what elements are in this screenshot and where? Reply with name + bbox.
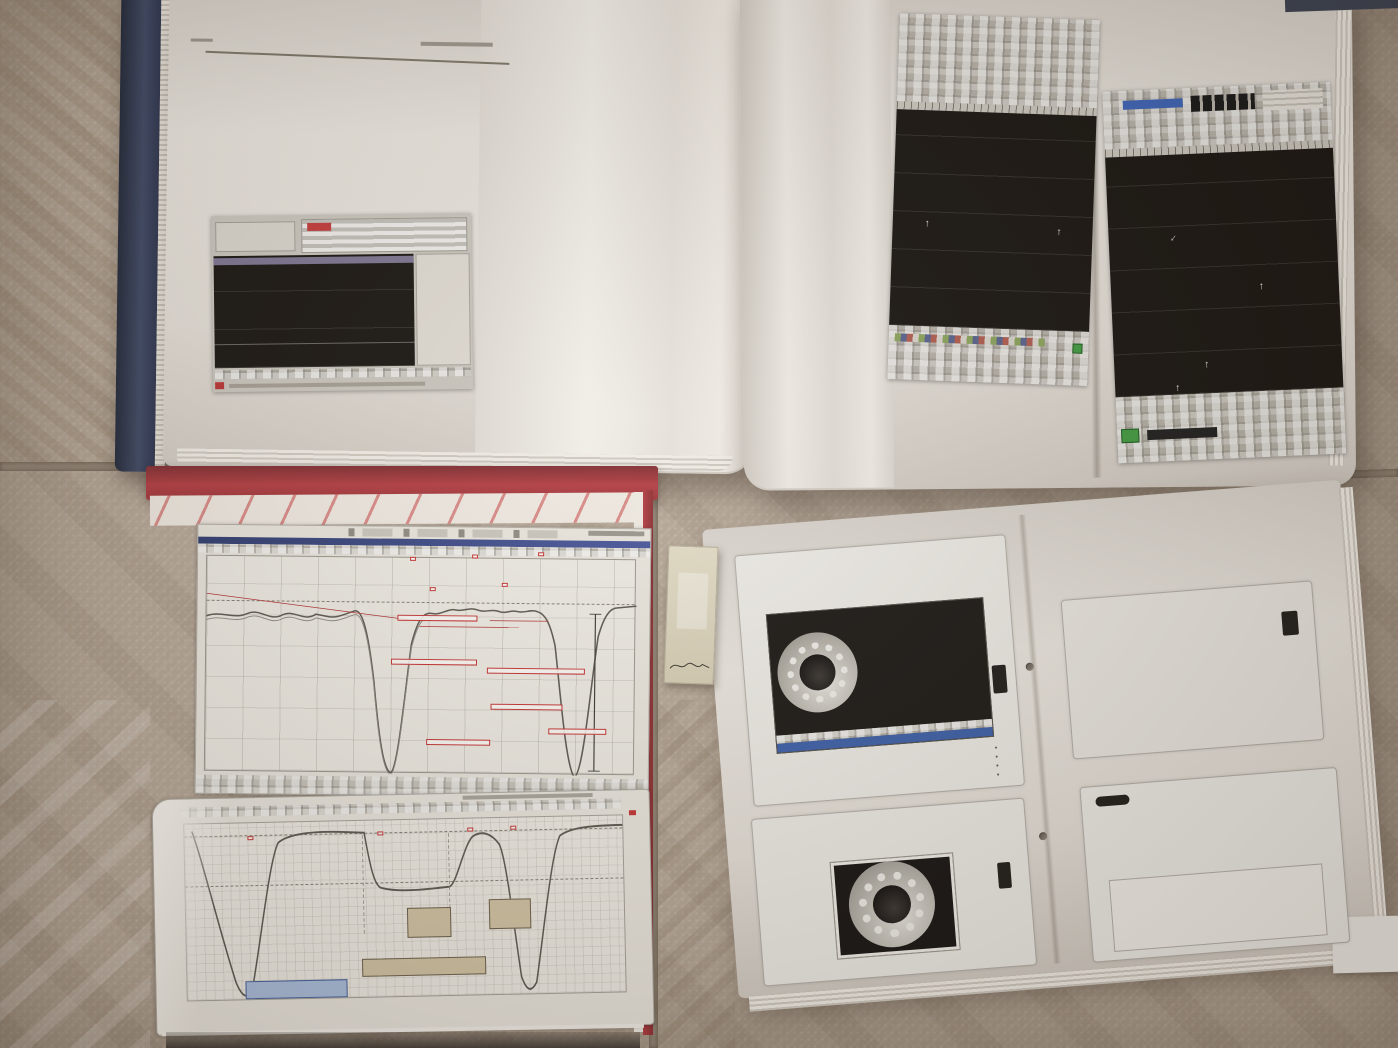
- caption-line-2: [1301, 136, 1310, 144]
- right-axis-labels: [631, 820, 649, 1000]
- scope-screenshot-left: ↑ ↑: [887, 13, 1100, 386]
- book-spine: [115, 0, 162, 472]
- bearing-photo: [831, 853, 960, 958]
- compression-chart-2: [152, 789, 655, 1035]
- right-axis-labels: [636, 563, 651, 775]
- window-title-text-bar: [588, 531, 644, 537]
- book-bottom-shadow: [166, 1032, 640, 1048]
- arrow-up: ↑: [1259, 281, 1264, 292]
- annotation-5: [426, 739, 490, 746]
- annotation-1: [397, 615, 477, 622]
- bookmark-card: [664, 545, 719, 685]
- pico-logo-pill: [1095, 794, 1130, 807]
- spectrum-plot: [1109, 863, 1328, 952]
- top-toolbar: [181, 798, 621, 817]
- tan-annotation-wide: [362, 956, 486, 977]
- bookmark-brand: [669, 550, 717, 552]
- pico-logo: [997, 862, 1012, 889]
- annotation-3: [487, 668, 585, 675]
- software-screenshot: [766, 597, 994, 754]
- tile-ornament-bottom-left: [0, 700, 150, 1048]
- bdc-tag-2: [472, 555, 478, 559]
- slide-vibration-enveloping-2: [751, 798, 1037, 987]
- checkbox-row: [348, 528, 568, 538]
- binder-bottom-right: [702, 478, 1398, 1048]
- title-red: [1072, 717, 1321, 737]
- bookmark-sketch: [677, 573, 709, 630]
- toolbar-strip: [215, 367, 471, 379]
- vibration-waveform: [863, 597, 990, 726]
- ignition-traces: [214, 254, 415, 368]
- slide-content: [1062, 581, 1324, 758]
- arrow-up: ↑: [1204, 359, 1209, 370]
- pico-logo: [992, 665, 1008, 694]
- annotation-6: [548, 728, 606, 735]
- tile-ornament-top-left: [0, 0, 120, 465]
- subtitle: [1072, 717, 1321, 737]
- title-line-2: [1072, 717, 1321, 737]
- green-button: [1121, 428, 1140, 443]
- evc-tag: [502, 583, 508, 587]
- table-red-cell: [307, 223, 331, 231]
- page-curl-highlight: [153, 799, 238, 1037]
- pressure-curves: [205, 556, 637, 776]
- book-top-left: [115, 0, 767, 491]
- annotation-2: [391, 659, 477, 666]
- paragraph-block-bottom: [215, 401, 526, 461]
- slide-content: [752, 799, 1036, 986]
- tag-366: [377, 831, 383, 835]
- tag-126: [467, 828, 473, 832]
- title-line-1: [1072, 717, 1321, 737]
- arrow-up: ↑: [1056, 227, 1061, 238]
- waveform-plot: [214, 254, 415, 368]
- green-indicator: [1072, 343, 1082, 353]
- bdc-tag-1: [410, 557, 416, 561]
- bullet-line-1: [995, 952, 996, 959]
- left-page-curl: [740, 0, 894, 489]
- book-top-right: ↑ ↑ ↓ ↑ ↑ ↑: [740, 0, 1384, 506]
- tag-230: [247, 836, 253, 840]
- vacuum-noise-trace: [889, 109, 1096, 332]
- oscilloscope-screenshot: [211, 213, 473, 392]
- table-small-panel: [215, 221, 295, 252]
- handwriting-squiggle: [668, 656, 713, 676]
- chrome-toolbar: [897, 13, 1100, 108]
- page-number-mark: [191, 38, 213, 41]
- bookmark-text-lines: [672, 638, 711, 655]
- book-bottom-left: [138, 462, 666, 1048]
- evo-tag: [430, 587, 436, 591]
- spectrum-comb: [1110, 865, 1324, 941]
- blue-info-box: [245, 979, 347, 999]
- arrow-up: ↑: [1175, 383, 1180, 394]
- tan-annotation-2: [489, 898, 532, 929]
- slide-content: [735, 535, 1024, 805]
- signal-list-panel: [416, 253, 471, 366]
- caption-line: [229, 382, 425, 388]
- slide-bearing-fault-spectrum: [1079, 767, 1350, 963]
- white-panel: [1262, 88, 1323, 111]
- tag-1: [510, 826, 516, 830]
- caption-line-2: [879, 108, 886, 116]
- slide-vibration-enveloping-1: [734, 534, 1025, 807]
- photo-of-books-on-tile-floor: ↑ ↑ ↓ ↑ ↑ ↑: [0, 0, 1398, 1048]
- pico-logo: [1281, 611, 1299, 636]
- bearing-image: [767, 608, 870, 734]
- blank-right-pages: [475, 0, 760, 472]
- bullet-list: [751, 745, 989, 797]
- tan-annotation-1: [407, 907, 452, 938]
- red-dash-page: [150, 492, 650, 525]
- slide-content: [1080, 768, 1349, 962]
- bdc-tag-3: [538, 552, 544, 556]
- caption-red-box: [215, 382, 224, 389]
- paragraph-block-top: [214, 81, 516, 205]
- black-buttons: [1191, 93, 1256, 112]
- compression-chart-1: [195, 524, 652, 799]
- slide-enveloping-title: [1061, 580, 1325, 759]
- annotation-4: [490, 704, 562, 711]
- red-axis-mark: [629, 810, 636, 815]
- arrow-up: ↑: [925, 218, 930, 229]
- vacuum-plot: ↑ ↑: [889, 109, 1096, 332]
